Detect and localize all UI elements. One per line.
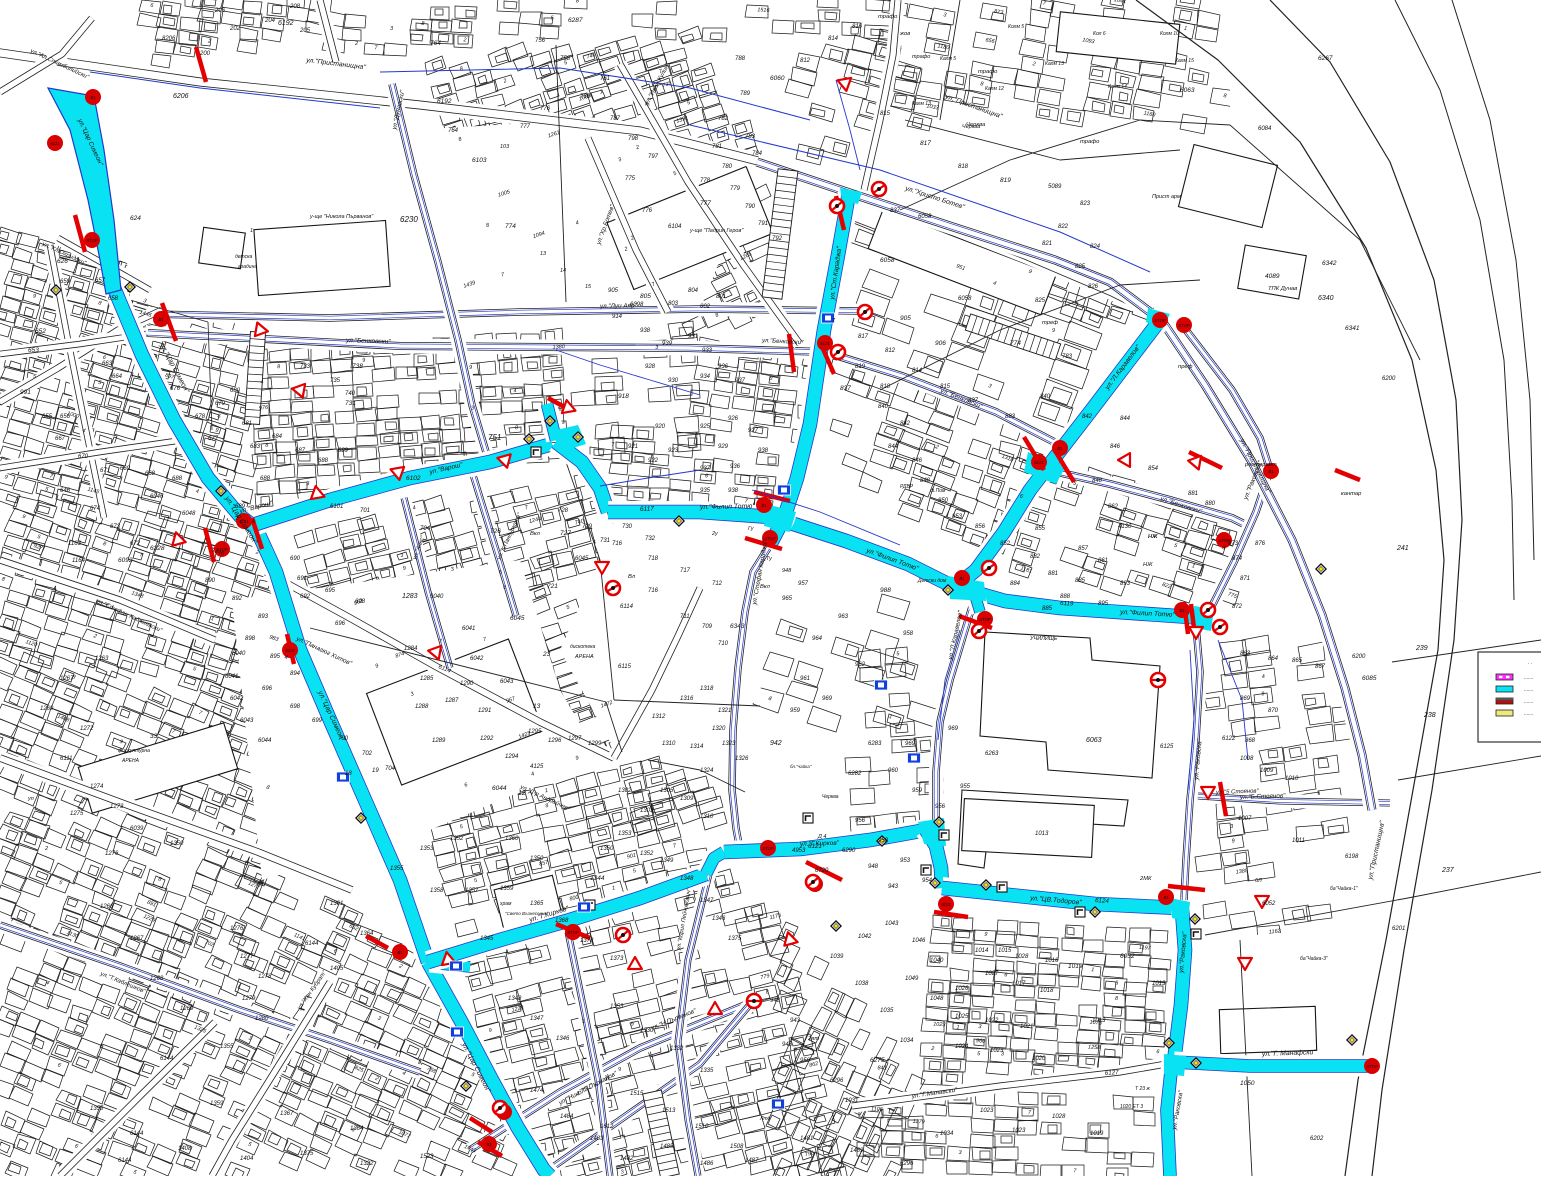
svg-text:1474: 1474	[530, 1088, 544, 1094]
svg-text:868: 868	[1245, 738, 1256, 744]
svg-text:1021: 1021	[1020, 1024, 1033, 1030]
svg-text:895: 895	[1098, 601, 1109, 607]
svg-text:939: 939	[662, 341, 673, 347]
svg-text:733: 733	[300, 364, 311, 370]
svg-text:855: 855	[1035, 526, 1046, 532]
svg-text:925: 925	[700, 424, 711, 430]
svg-text:детска: детска	[235, 254, 252, 260]
svg-text:6296: 6296	[830, 1078, 844, 1084]
svg-text:1612: 1612	[600, 1124, 614, 1130]
svg-text:1275: 1275	[70, 811, 84, 817]
svg-text:680: 680	[230, 388, 241, 394]
svg-text:1106: 1106	[871, 1106, 884, 1112]
svg-text:764: 764	[430, 40, 441, 47]
svg-text:4089: 4089	[1265, 273, 1280, 280]
svg-text:6198: 6198	[1345, 854, 1359, 860]
svg-text:865: 865	[1292, 658, 1303, 664]
svg-text:805: 805	[640, 293, 651, 300]
svg-text:791: 791	[758, 221, 768, 227]
svg-text:731: 731	[600, 538, 610, 544]
svg-text:6283: 6283	[868, 741, 882, 747]
svg-text:761: 761	[600, 76, 610, 82]
svg-text:1028: 1028	[1015, 954, 1029, 960]
svg-text:РДВР: РДВР	[900, 484, 914, 490]
svg-text:1279: 1279	[912, 1119, 924, 1125]
svg-text:792: 792	[772, 236, 783, 242]
svg-text:1284: 1284	[404, 646, 418, 652]
svg-text:преф: преф	[1178, 364, 1193, 370]
svg-text:Калм 5: Калм 5	[940, 56, 956, 62]
svg-text:738: 738	[352, 363, 363, 370]
svg-text:1019: 1019	[1068, 963, 1083, 970]
svg-text:778: 778	[700, 178, 711, 184]
svg-text:689: 689	[235, 504, 246, 510]
svg-text:1274: 1274	[90, 784, 104, 790]
svg-text:8206: 8206	[162, 36, 176, 42]
svg-text:892: 892	[232, 596, 243, 602]
svg-text:1361: 1361	[330, 901, 343, 907]
svg-text:6102: 6102	[406, 475, 421, 482]
svg-text:1043: 1043	[885, 921, 899, 927]
svg-text:850: 850	[938, 498, 949, 504]
svg-text:934: 934	[700, 374, 711, 380]
svg-text:695: 695	[325, 588, 336, 594]
svg-text:.......: .......	[1524, 699, 1534, 705]
svg-text:700: 700	[338, 736, 349, 742]
svg-text:Вкл: Вкл	[760, 584, 771, 590]
svg-text:817: 817	[858, 334, 869, 340]
svg-text:4125: 4125	[530, 764, 544, 770]
svg-text:1357: 1357	[465, 888, 479, 894]
svg-text:1310: 1310	[662, 741, 676, 747]
svg-text:208: 208	[289, 4, 301, 10]
svg-text:STOP: STOP	[979, 617, 991, 622]
svg-text:1007: 1007	[1238, 816, 1252, 822]
svg-text:1344: 1344	[590, 875, 605, 882]
svg-text:1481: 1481	[800, 1136, 813, 1142]
svg-text:6192: 6192	[278, 20, 294, 27]
svg-text:6127: 6127	[1105, 1069, 1120, 1077]
svg-text:664: 664	[112, 374, 123, 380]
svg-text:1289: 1289	[432, 738, 446, 744]
svg-text:846: 846	[912, 458, 923, 464]
svg-text:1324: 1324	[700, 768, 714, 774]
svg-text:784: 784	[752, 151, 763, 157]
svg-text:6275: 6275	[870, 1057, 885, 1064]
svg-text:1510: 1510	[695, 1124, 709, 1130]
svg-text:241: 241	[1396, 545, 1409, 552]
svg-text:963: 963	[838, 614, 849, 620]
svg-text:969: 969	[905, 741, 916, 747]
svg-text:ба"Чайка-3": ба"Чайка-3"	[1300, 955, 1328, 962]
svg-text:6206: 6206	[173, 93, 189, 100]
svg-text:6296: 6296	[900, 1161, 914, 1167]
svg-text:Т 23 ж: Т 23 ж	[1135, 1086, 1150, 1092]
svg-text:1010: 1010	[1285, 776, 1299, 782]
svg-text:1347: 1347	[530, 1016, 544, 1022]
svg-text:870: 870	[1268, 708, 1279, 714]
svg-text:1485: 1485	[660, 1144, 674, 1150]
svg-text:6125: 6125	[1160, 744, 1174, 750]
svg-text:760: 760	[580, 94, 591, 100]
svg-text:6115: 6115	[618, 664, 632, 670]
svg-text:STOP: STOP	[1366, 1064, 1378, 1069]
svg-text:1310: 1310	[700, 814, 714, 820]
svg-text:6201: 6201	[1392, 926, 1405, 932]
svg-text:1273: 1273	[110, 804, 124, 810]
svg-text:6144: 6144	[118, 1158, 132, 1164]
svg-text:6121: 6121	[1034, 460, 1043, 465]
svg-text:1015: 1015	[998, 948, 1012, 954]
svg-text:928: 928	[645, 364, 656, 370]
svg-text:6042: 6042	[470, 656, 484, 662]
svg-text:1349: 1349	[660, 858, 674, 864]
svg-text:658: 658	[108, 296, 119, 302]
svg-text:823: 823	[1080, 201, 1091, 207]
svg-text:6340: 6340	[1318, 295, 1334, 302]
svg-text:893: 893	[258, 614, 269, 620]
svg-text:687: 687	[295, 448, 306, 454]
svg-text:1314: 1314	[690, 744, 704, 750]
svg-text:935: 935	[700, 488, 711, 494]
svg-text:1023: 1023	[1012, 1128, 1026, 1134]
svg-text:1330: 1330	[640, 1028, 654, 1034]
svg-text:1027: 1027	[985, 971, 999, 977]
svg-text:6044: 6044	[492, 785, 507, 792]
svg-text:у-ще "Падрин Геров": у-ще "Падрин Геров"	[689, 228, 744, 234]
svg-text:1484: 1484	[560, 1114, 574, 1120]
svg-text:751: 751	[488, 433, 501, 442]
svg-text:690: 690	[290, 556, 301, 562]
svg-text:6114: 6114	[620, 604, 634, 610]
svg-text:6044: 6044	[258, 738, 272, 744]
svg-text:6058: 6058	[958, 296, 972, 302]
svg-text:6Л: 6Л	[1255, 878, 1262, 884]
svg-text:Калм 15: Калм 15	[1175, 58, 1194, 64]
svg-text:960: 960	[888, 768, 899, 774]
svg-text:731: 731	[345, 400, 356, 407]
svg-text:1031: 1031	[845, 1098, 858, 1104]
svg-text:857: 857	[1078, 546, 1089, 552]
svg-text:1359: 1359	[500, 886, 514, 892]
svg-text:688: 688	[260, 476, 271, 482]
svg-text:1046: 1046	[912, 938, 926, 944]
svg-text:6045: 6045	[575, 556, 589, 562]
svg-text:1022: 1022	[985, 1018, 999, 1024]
svg-text:653: 653	[28, 347, 39, 354]
svg-text:927: 927	[748, 428, 759, 434]
svg-text:6121: 6121	[820, 341, 829, 346]
svg-text:1013: 1013	[1092, 1018, 1106, 1024]
svg-text:1516: 1516	[757, 7, 770, 14]
svg-text:652: 652	[35, 328, 46, 335]
svg-text:716: 716	[612, 541, 623, 547]
svg-text:1353: 1353	[618, 831, 632, 837]
svg-text:1320: 1320	[712, 726, 726, 732]
svg-text:783: 783	[1062, 354, 1073, 360]
svg-text:894: 894	[290, 671, 301, 677]
svg-text:931: 931	[688, 334, 698, 340]
svg-text:735: 735	[330, 378, 341, 384]
svg-text:6043: 6043	[500, 679, 514, 685]
svg-text:624: 624	[130, 215, 141, 222]
svg-text:948: 948	[770, 998, 781, 1004]
svg-text:1316: 1316	[680, 696, 694, 702]
svg-text:1305: 1305	[660, 788, 674, 794]
svg-text:933: 933	[702, 348, 713, 354]
svg-text:6290: 6290	[842, 848, 856, 854]
svg-text:1014: 1014	[975, 948, 989, 954]
svg-text:926: 926	[728, 416, 739, 422]
svg-text:922: 922	[648, 458, 659, 464]
svg-text:Детски дом: Детски дом	[917, 578, 947, 584]
svg-text:920: 920	[655, 424, 666, 430]
svg-text:1335: 1335	[700, 1068, 714, 1074]
svg-text:6058: 6058	[918, 214, 932, 220]
svg-text:797: 797	[648, 154, 659, 160]
svg-text:656: 656	[60, 414, 71, 420]
svg-text:4130: 4130	[1118, 524, 1132, 530]
svg-text:6287: 6287	[568, 17, 583, 24]
svg-text:964: 964	[812, 636, 823, 642]
svg-text:804: 804	[688, 288, 699, 294]
svg-text:655: 655	[42, 414, 53, 420]
svg-text:824: 824	[1090, 244, 1101, 250]
svg-text:817: 817	[920, 140, 931, 147]
svg-text:764: 764	[448, 128, 459, 134]
svg-text:1345: 1345	[480, 936, 494, 942]
svg-text:818: 818	[880, 384, 891, 390]
svg-text:103: 103	[500, 144, 510, 150]
svg-text:9: 9	[1052, 328, 1055, 334]
svg-text:872: 872	[1232, 604, 1243, 610]
svg-text:1280: 1280	[255, 1016, 269, 1022]
svg-text:1295: 1295	[528, 729, 542, 735]
svg-text:1038: 1038	[855, 981, 869, 987]
svg-text:788: 788	[735, 56, 746, 62]
svg-text:дискотека: дискотека	[570, 644, 595, 650]
svg-text:B1: B1	[1268, 469, 1273, 474]
svg-text:1197: 1197	[1139, 945, 1152, 952]
svg-text:1040: 1040	[930, 958, 944, 964]
svg-text:958: 958	[878, 838, 889, 844]
svg-text:2: 2	[462, 37, 466, 43]
svg-text:14: 14	[560, 268, 566, 274]
svg-text:1258: 1258	[1088, 1044, 1102, 1051]
svg-text:23: 23	[542, 651, 551, 658]
svg-text:1346: 1346	[712, 916, 726, 922]
svg-text:2: 2	[207, 38, 212, 45]
svg-text:942: 942	[770, 740, 782, 747]
svg-text:1296: 1296	[548, 738, 562, 744]
svg-text:846: 846	[1110, 444, 1121, 450]
svg-text:1291: 1291	[478, 708, 491, 714]
svg-text:Лтд: Лтд	[759, 1116, 771, 1122]
svg-text:882: 882	[1030, 554, 1041, 560]
svg-text:958: 958	[903, 631, 914, 637]
svg-text:1279: 1279	[242, 996, 256, 1002]
svg-text:B1: B1	[1179, 608, 1184, 613]
svg-text:938: 938	[728, 488, 739, 494]
svg-text:721: 721	[547, 583, 558, 590]
svg-text:НЖ: НЖ	[1148, 534, 1158, 540]
svg-text:1346: 1346	[556, 1036, 570, 1042]
svg-text:6122: 6122	[1222, 736, 1236, 742]
svg-text:704: 704	[420, 526, 431, 532]
svg-text:градина: градина	[238, 264, 257, 270]
svg-text:1017: 1017	[1012, 981, 1026, 987]
svg-text:1008: 1008	[1240, 756, 1254, 762]
svg-text:1513: 1513	[662, 1108, 676, 1114]
svg-text:688: 688	[172, 476, 183, 482]
svg-text:1272: 1272	[80, 726, 94, 732]
svg-text:1013: 1013	[1152, 981, 1166, 987]
svg-text:885: 885	[1075, 578, 1086, 584]
svg-text:895: 895	[270, 654, 281, 660]
svg-text:6111: 6111	[60, 756, 72, 762]
svg-text:1359: 1359	[210, 1101, 224, 1107]
svg-text:1350: 1350	[600, 846, 614, 852]
svg-text:874: 874	[1232, 556, 1243, 562]
svg-text:1378: 1378	[580, 938, 594, 944]
svg-text:6052: 6052	[1262, 901, 1276, 907]
svg-text:1023: 1023	[980, 1108, 994, 1114]
svg-text:STOP: STOP	[762, 846, 774, 851]
svg-text:758: 758	[560, 56, 571, 62]
svg-text:782: 782	[718, 116, 729, 122]
svg-text:1380: 1380	[552, 344, 566, 351]
svg-text:трафо: трафо	[912, 54, 930, 60]
svg-text:6342: 6342	[1322, 260, 1337, 267]
svg-text:4: 4	[260, 379, 263, 385]
svg-text:698: 698	[355, 599, 366, 605]
svg-text:957: 957	[798, 581, 809, 587]
svg-text:842: 842	[900, 421, 911, 427]
svg-text:960: 960	[976, 1038, 987, 1045]
svg-text:729: 729	[582, 524, 593, 530]
svg-text:1: 1	[956, 1025, 959, 1031]
svg-text:938: 938	[640, 328, 651, 334]
svg-text:238: 238	[1423, 712, 1436, 719]
svg-text:1355: 1355	[220, 1044, 234, 1050]
svg-text:948: 948	[868, 864, 879, 870]
svg-text:206: 206	[214, 8, 226, 14]
svg-text:6119: 6119	[1060, 600, 1074, 607]
svg-text:1048: 1048	[930, 996, 944, 1002]
svg-text:965: 965	[782, 596, 793, 602]
svg-text:1508: 1508	[730, 1144, 744, 1150]
svg-text:1018: 1018	[1040, 988, 1054, 994]
svg-text:781: 781	[712, 144, 722, 150]
svg-text:1486: 1486	[700, 1161, 714, 1167]
svg-text:819: 819	[1000, 177, 1011, 184]
svg-text:681: 681	[242, 421, 252, 427]
svg-text:1276: 1276	[105, 851, 119, 857]
svg-text:1353: 1353	[420, 846, 434, 852]
svg-text:.......: .......	[1524, 675, 1534, 681]
svg-text:676: 676	[170, 386, 181, 392]
svg-text:Калм 13: Калм 13	[912, 101, 931, 107]
svg-text:1350: 1350	[170, 841, 184, 847]
svg-text:702: 702	[362, 751, 373, 757]
svg-text:1011: 1011	[1292, 838, 1305, 844]
svg-text:955: 955	[960, 784, 971, 790]
svg-text:959: 959	[912, 788, 923, 794]
svg-text:780: 780	[722, 164, 733, 170]
svg-text:6085: 6085	[1362, 675, 1377, 682]
svg-text:6043: 6043	[240, 718, 254, 724]
svg-text:1278: 1278	[258, 974, 272, 980]
svg-text:200: 200	[199, 51, 211, 57]
svg-text:"Свето Възнесение": "Свето Възнесение"	[505, 911, 549, 916]
svg-text:13: 13	[540, 251, 547, 257]
svg-text:6063: 6063	[1086, 737, 1102, 744]
svg-text:950: 950	[800, 1058, 811, 1064]
svg-text:709: 709	[702, 624, 713, 630]
svg-text:710: 710	[718, 641, 729, 647]
svg-text:954: 954	[922, 878, 933, 884]
svg-text:726: 726	[490, 528, 501, 535]
svg-text:6104: 6104	[668, 224, 682, 230]
svg-text:873: 873	[1228, 541, 1239, 547]
svg-text:815: 815	[940, 384, 951, 390]
svg-text:1268: 1268	[150, 976, 164, 982]
svg-text:969: 969	[948, 726, 959, 732]
svg-text:712: 712	[712, 581, 723, 587]
svg-text:1405: 1405	[330, 966, 344, 972]
svg-text:Вл: Вл	[628, 574, 636, 580]
svg-text:ул."Филип Тотю": ул."Филип Тотю"	[699, 503, 755, 511]
svg-text:959: 959	[790, 708, 801, 714]
svg-text:669: 669	[120, 466, 131, 472]
svg-text:1266: 1266	[100, 904, 114, 910]
svg-text:814: 814	[828, 36, 839, 42]
svg-text:1360: 1360	[505, 836, 519, 842]
svg-text:1016: 1016	[1045, 958, 1059, 964]
svg-text:1025: 1025	[955, 1014, 969, 1020]
svg-text:6045: 6045	[510, 615, 525, 622]
svg-text:1487: 1487	[745, 1158, 759, 1164]
svg-text:6046: 6046	[150, 494, 164, 500]
svg-text:837: 837	[890, 208, 901, 214]
svg-text:1023: 1023	[933, 1022, 947, 1029]
svg-text:2: 2	[354, 41, 358, 47]
svg-text:774: 774	[1010, 340, 1021, 347]
svg-text:205: 205	[299, 28, 311, 34]
svg-text:УЧИЛИЩЕ: УЧИЛИЩЕ	[1029, 636, 1058, 642]
svg-text:15: 15	[585, 284, 592, 290]
svg-text:бл."чайка": бл."чайка"	[790, 763, 812, 769]
svg-text:905: 905	[608, 288, 619, 294]
svg-text:815: 815	[880, 111, 891, 117]
svg-text:B1: B1	[90, 95, 95, 100]
svg-text:1267: 1267	[60, 676, 74, 682]
svg-text:943: 943	[790, 1018, 801, 1024]
svg-text:1297: 1297	[568, 736, 582, 742]
svg-text:677: 677	[208, 436, 219, 442]
svg-text:1367: 1367	[280, 1111, 294, 1117]
svg-text:1269: 1269	[180, 1006, 194, 1012]
svg-text:1039: 1039	[830, 954, 844, 960]
svg-text:2: 2	[44, 846, 48, 852]
svg-text:789: 789	[740, 91, 751, 97]
svg-text:.......: .......	[1524, 687, 1534, 693]
svg-text:1277: 1277	[240, 954, 254, 960]
svg-text:1020: 1020	[1032, 1056, 1046, 1062]
svg-text:852: 852	[1000, 541, 1011, 547]
svg-text:948: 948	[782, 568, 792, 574]
svg-text:6282: 6282	[848, 771, 862, 777]
